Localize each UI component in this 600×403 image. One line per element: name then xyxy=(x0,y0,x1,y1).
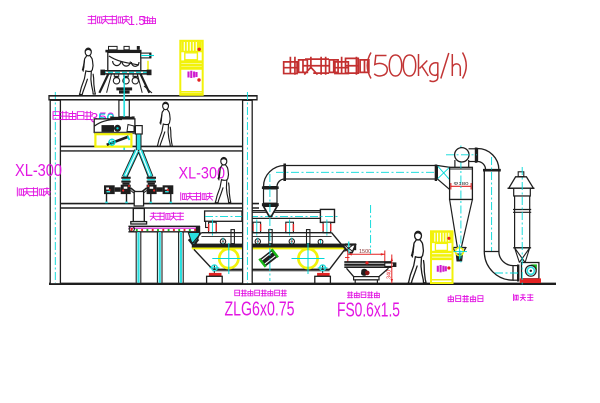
svg-text:340: 340 xyxy=(387,270,393,279)
svg-text:ZLG6x0.75: ZLG6x0.75 xyxy=(225,298,295,321)
svg-text:FS0.6x1.5: FS0.6x1.5 xyxy=(337,299,400,322)
svg-text:1500: 1500 xyxy=(359,249,371,255)
svg-text:XL-300: XL-300 xyxy=(179,164,226,183)
svg-text:XL-300: XL-300 xyxy=(15,160,62,180)
